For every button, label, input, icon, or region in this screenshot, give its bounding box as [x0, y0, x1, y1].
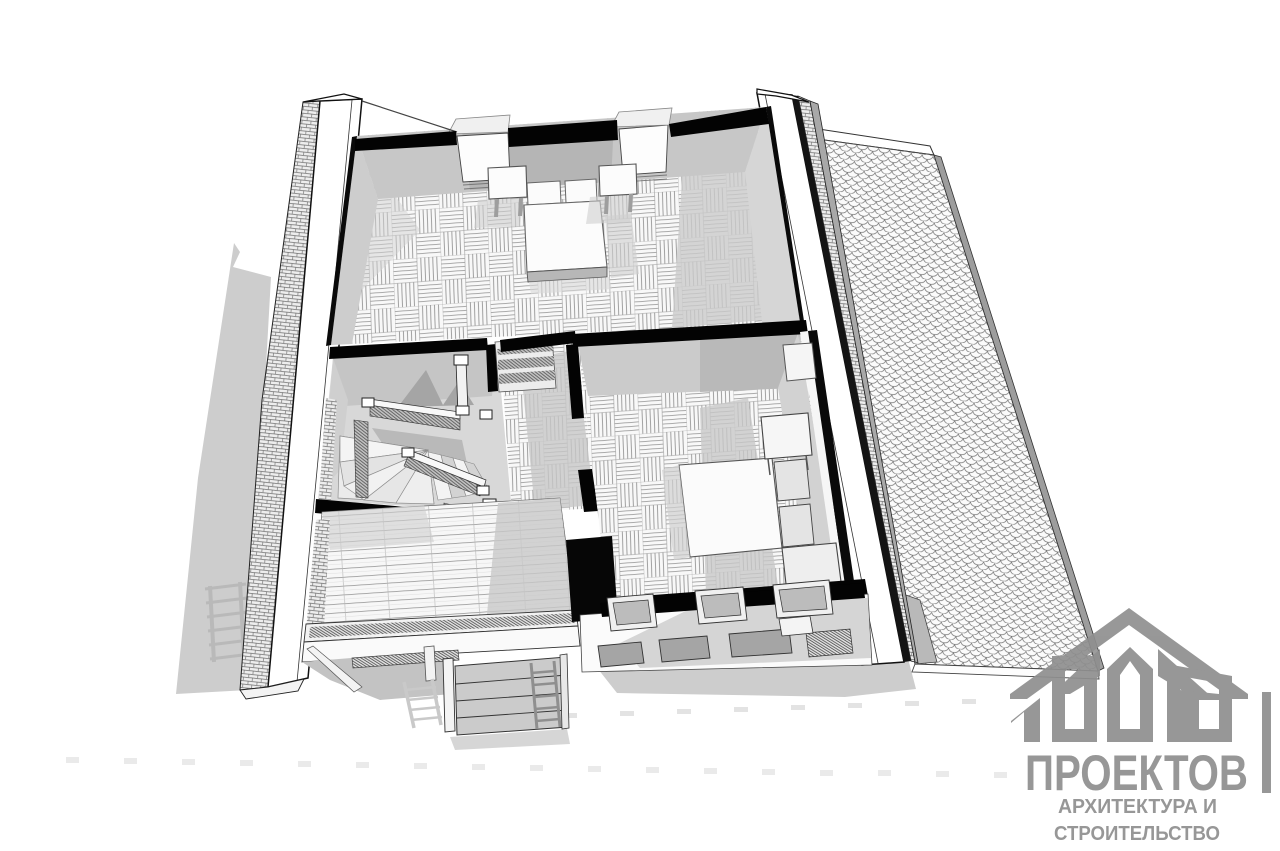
svg-text:СТРОИТЕЛЬСТВО: СТРОИТЕЛЬСТВО	[1054, 823, 1220, 845]
svg-text:ПРОЕКТОВ: ПРОЕКТОВ	[1025, 745, 1248, 801]
svg-text:АРХИТЕКТУРА И: АРХИТЕКТУРА И	[1058, 796, 1217, 818]
